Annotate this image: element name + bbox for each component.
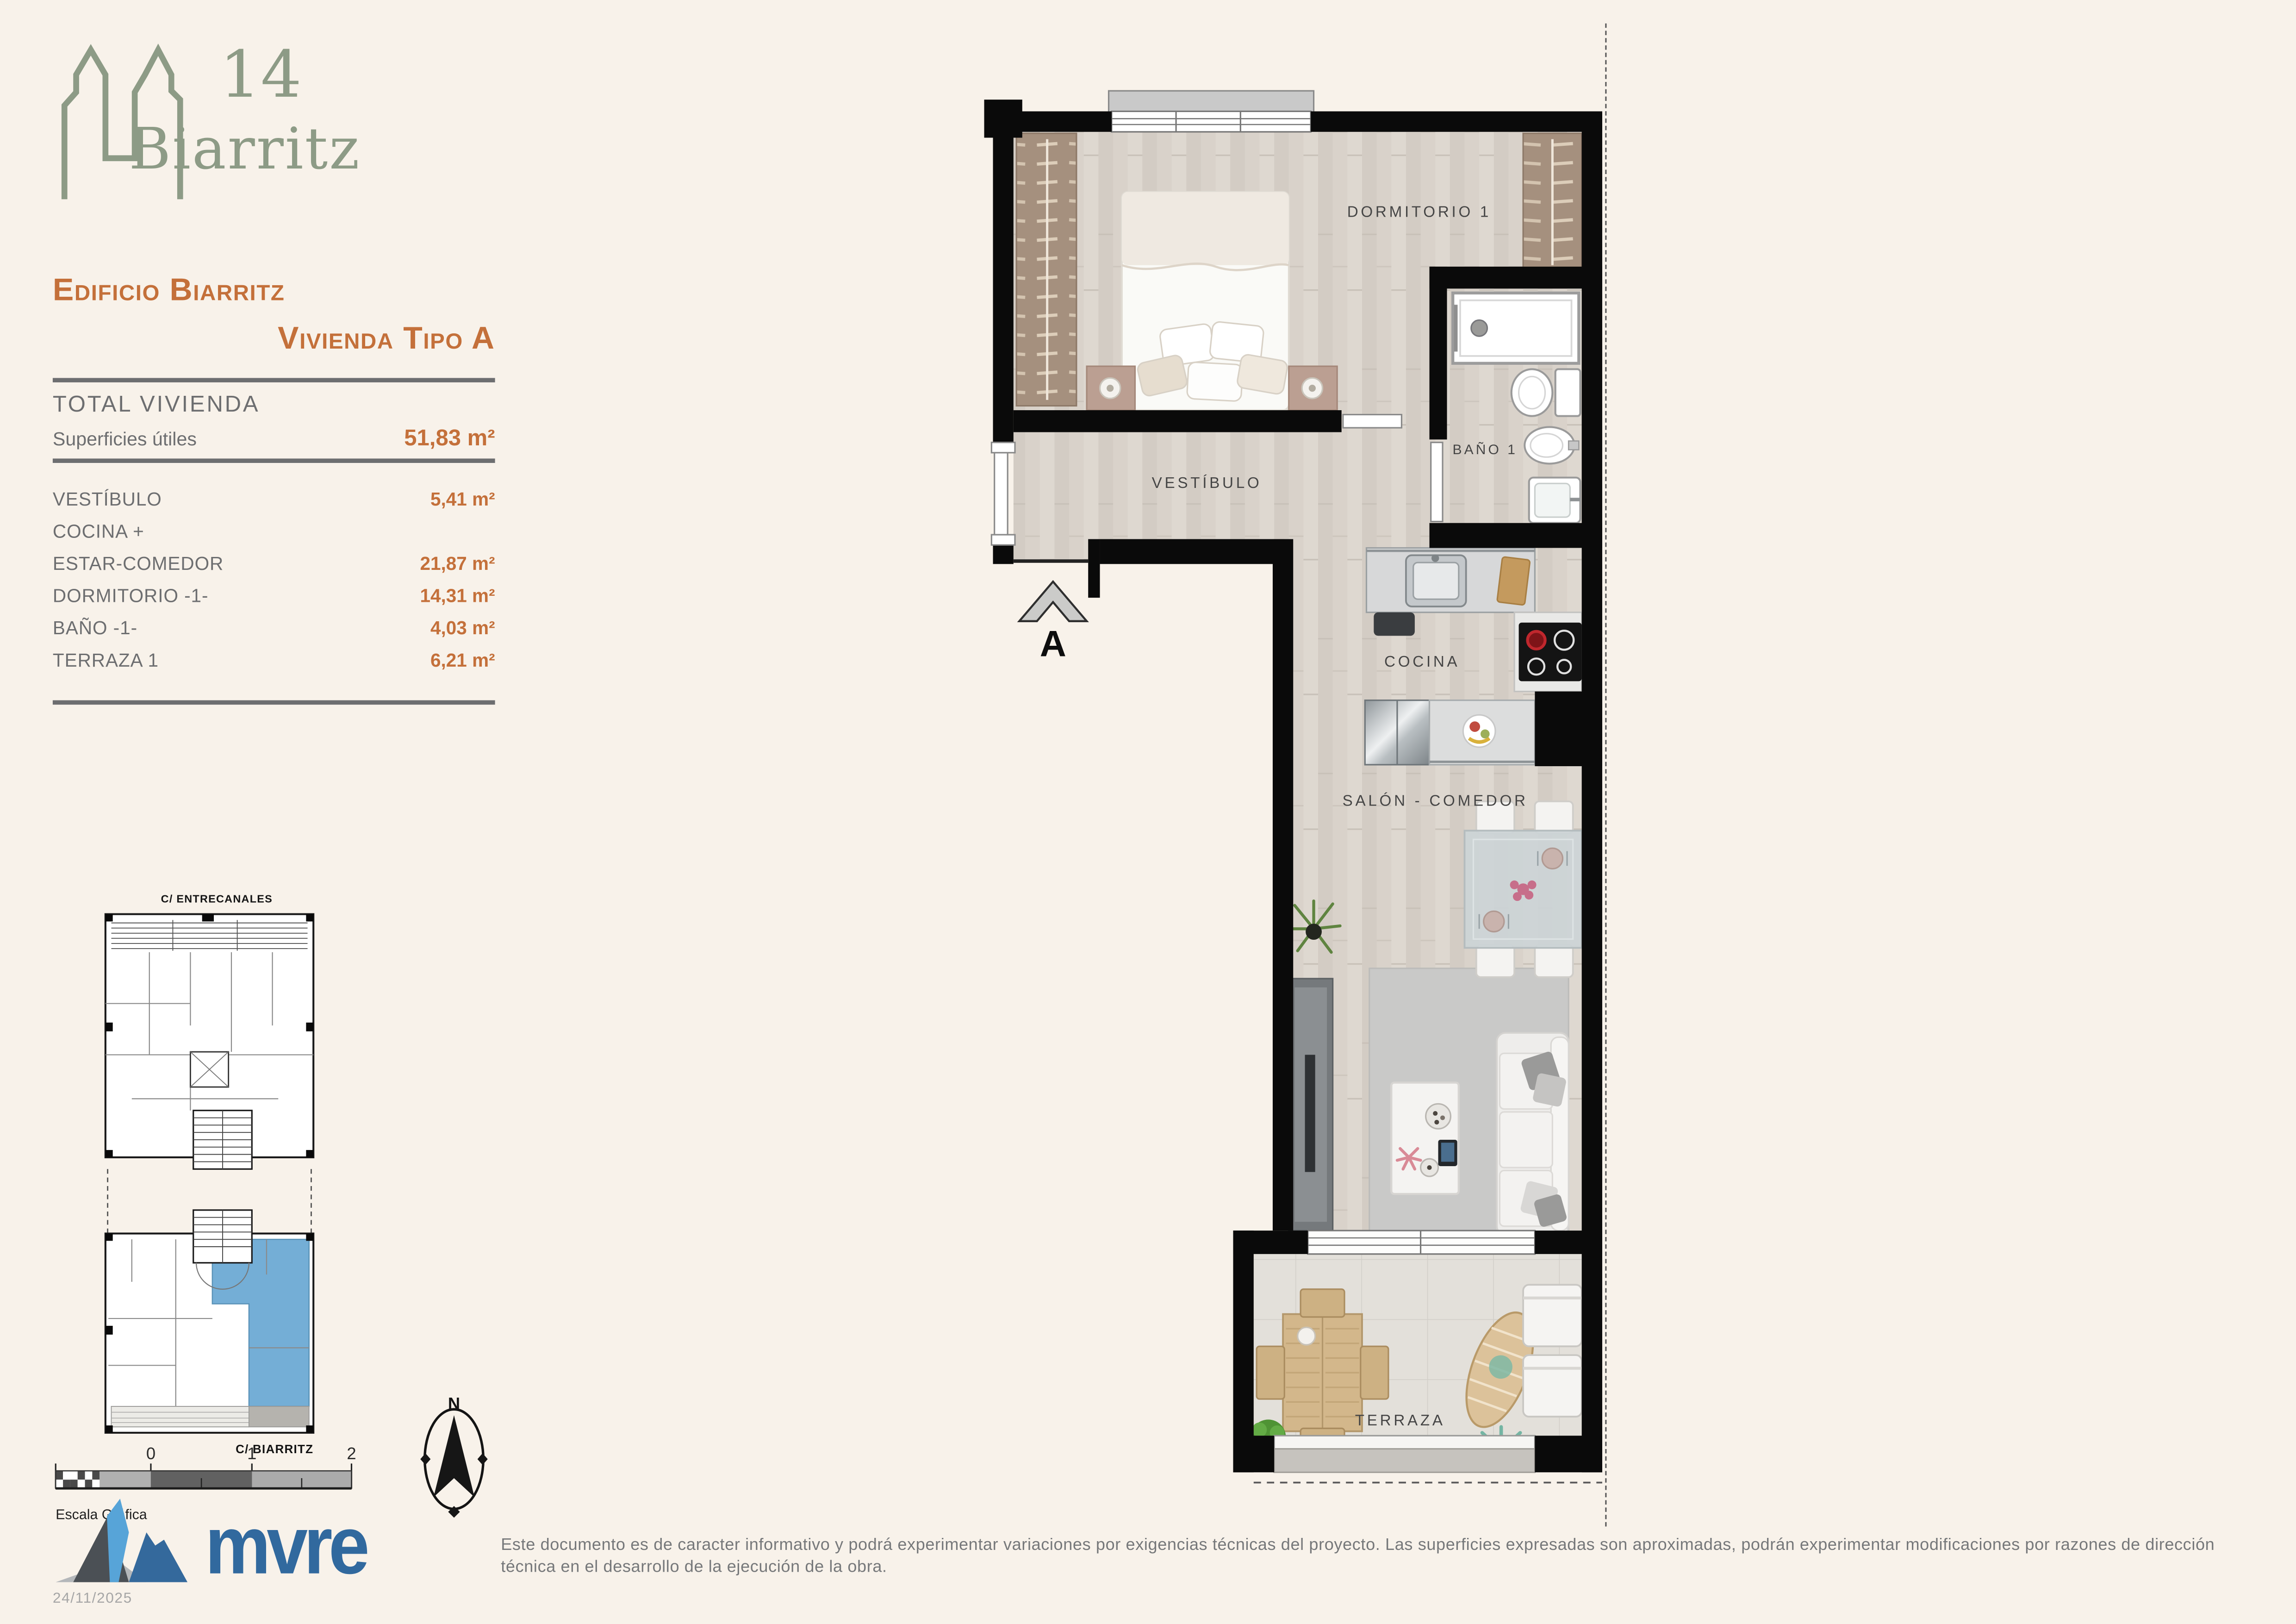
scale-bar-segments [56, 1471, 351, 1488]
tv-unit [1289, 979, 1333, 1230]
table-row: COCINA + [53, 520, 495, 542]
wardrobe [1523, 133, 1582, 271]
room-value: 5,41 m² [430, 488, 495, 510]
logo-name: Biarritz [129, 117, 361, 183]
floorplan-sheet: 14 Biarritz Edificio Biarritz Vivienda T… [0, 0, 2296, 1624]
summary-row: Superficies útiles 51,83 m² [53, 426, 495, 453]
shower [1453, 293, 1579, 363]
room-label-terrace: TERRAZA [1355, 1412, 1445, 1429]
room-label: DORMITORIO -1- [53, 585, 209, 606]
section-marker-label: A [1040, 623, 1066, 664]
wardrobe [1016, 133, 1076, 406]
toilet [1512, 369, 1580, 416]
terrace-sliding-door [1308, 1230, 1535, 1254]
brand-wordmark: mvre [205, 1497, 366, 1593]
elevator-core-icon [190, 1052, 228, 1087]
nightstand [1087, 366, 1135, 410]
main-floor-plan: DORMITORIO 1 BAÑO 1 VESTÍBULO COCINA SAL… [967, 59, 1626, 1524]
coffee-machine [1374, 612, 1415, 636]
room-label-bathroom: BAÑO 1 [1453, 442, 1518, 457]
summary-label: Superficies útiles [53, 428, 197, 450]
title-building: Edificio Biarritz [53, 275, 495, 307]
north-label: N [448, 1394, 460, 1413]
divider [53, 700, 495, 704]
room-label-bedroom: DORMITORIO 1 [1347, 203, 1491, 220]
brand-logo-icon [44, 1491, 205, 1594]
stairs-icon [193, 1111, 252, 1169]
street-label-top: C/ ENTRECANALES [161, 893, 273, 905]
room-label-living: SALÓN - COMEDOR [1343, 792, 1528, 809]
summary-value: 51,83 m² [404, 426, 495, 453]
table-row: ESTAR-COMEDOR 21,87 m² [53, 552, 495, 574]
room-label: ESTAR-COMEDOR [53, 552, 224, 574]
table-row: BAÑO -1- 4,03 m² [53, 617, 495, 638]
scale-tick-label: 0 [146, 1444, 156, 1463]
divider [53, 378, 495, 381]
section-arrow-icon: A [1019, 581, 1087, 664]
bedroom-window [1109, 91, 1314, 132]
key-plan-upper-block [106, 914, 313, 1169]
compass: N [403, 1384, 505, 1530]
divider [53, 458, 495, 462]
table-row: TERRAZA 1 6,21 m² [53, 649, 495, 671]
bed [1122, 192, 1289, 411]
fridge [1365, 700, 1429, 765]
title-unit: Vivienda Tipo A [53, 324, 495, 355]
disclaimer-text: Este documento es de caracter informativ… [501, 1535, 2252, 1580]
document-canvas: 14 Biarritz Edificio Biarritz Vivienda T… [0, 0, 2296, 1624]
bathroom-sink [1529, 478, 1580, 523]
kitchen-counter [1430, 700, 1535, 765]
kitchen-sink-counter [1366, 548, 1535, 612]
table-row: DORMITORIO -1- 14,31 m² [53, 585, 495, 606]
room-label-kitchen: COCINA [1384, 653, 1460, 670]
room-label: TERRAZA 1 [53, 649, 159, 671]
room-value: 21,87 m² [420, 552, 495, 574]
scale-tick-label: 2 [347, 1444, 356, 1463]
logo-number: 14 [220, 38, 302, 112]
dining-table [1465, 831, 1582, 948]
room-value: 6,21 m² [430, 649, 495, 671]
summary-heading: TOTAL VIVIENDA [53, 393, 260, 419]
table-row: VESTÍBULO 5,41 m² [53, 488, 495, 510]
room-value: 14,31 m² [420, 585, 495, 606]
scale-tick-label: 1 [247, 1444, 256, 1463]
room-label-hall: VESTÍBULO [1152, 475, 1262, 492]
room-value: 4,03 m² [430, 617, 495, 638]
nightstand [1289, 366, 1337, 410]
north-arrow-icon [434, 1415, 475, 1497]
key-plan-lower-block [106, 1210, 313, 1433]
hob-counter [1514, 612, 1582, 692]
coffee-table [1391, 1083, 1459, 1194]
sofa [1497, 1033, 1568, 1235]
room-label: COCINA + [53, 520, 144, 542]
room-label: BAÑO -1- [53, 617, 137, 638]
room-label: VESTÍBULO [53, 488, 162, 510]
terrace-table [1283, 1314, 1362, 1431]
date: 24/11/2025 [53, 1591, 132, 1607]
